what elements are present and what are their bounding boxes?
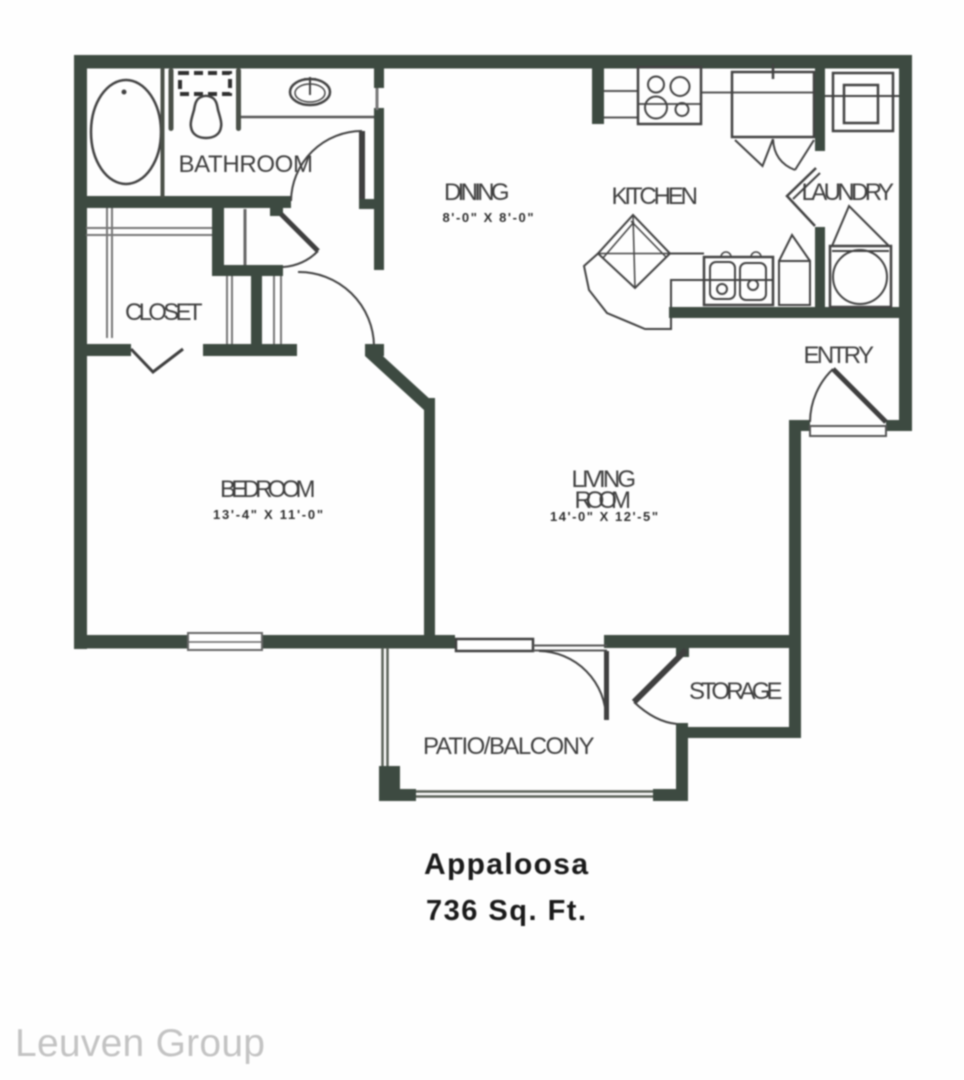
svg-text:DINING: DINING	[444, 179, 510, 206]
svg-text:CLOSET: CLOSET	[125, 299, 203, 326]
svg-text:LAUNDRY: LAUNDRY	[802, 179, 895, 206]
svg-text:ENTRY: ENTRY	[804, 342, 875, 369]
svg-text:PATIO/BALCONY: PATIO/BALCONY	[423, 733, 595, 760]
svg-text:KITCHEN: KITCHEN	[612, 183, 699, 210]
svg-text:BEDROOM: BEDROOM	[220, 476, 316, 503]
svg-text:8'-0" X 8'-0": 8'-0" X 8'-0"	[443, 210, 534, 225]
svg-text:BATHROOM: BATHROOM	[179, 151, 314, 178]
svg-text:Appaloosa: Appaloosa	[424, 848, 588, 881]
svg-text:Leuven Group: Leuven Group	[15, 1022, 265, 1065]
svg-text:736 Sq. Ft.: 736 Sq. Ft.	[426, 895, 586, 927]
svg-text:STORAGE: STORAGE	[689, 678, 783, 705]
